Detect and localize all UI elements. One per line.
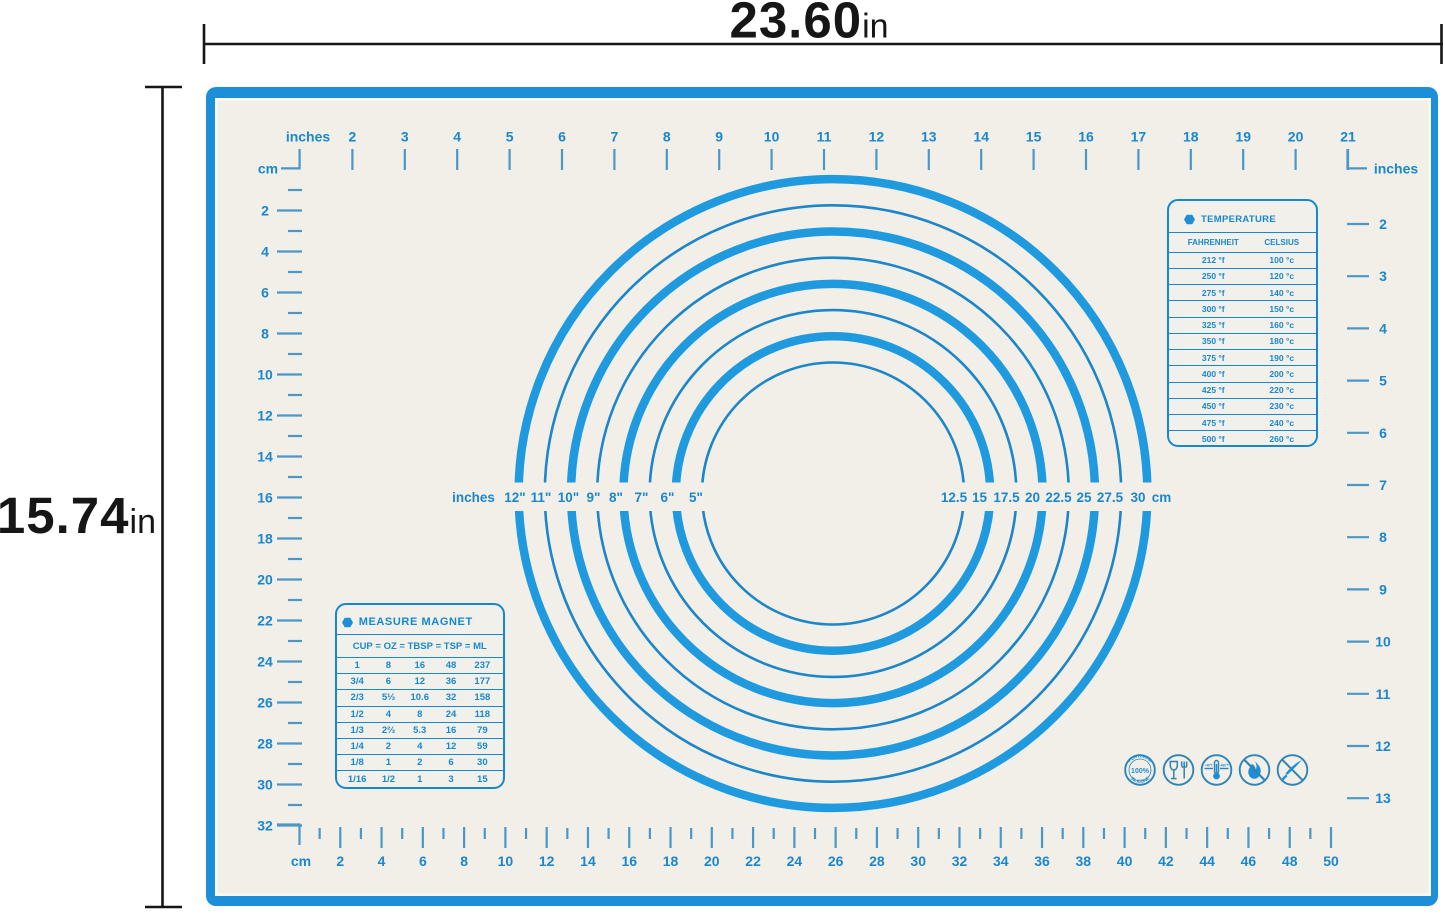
svg-text:cm: cm <box>258 161 278 177</box>
svg-text:30: 30 <box>1130 490 1145 505</box>
svg-text:13: 13 <box>921 129 937 145</box>
svg-text:26: 26 <box>257 695 273 711</box>
svg-text:30: 30 <box>910 853 926 869</box>
svg-text:17.5: 17.5 <box>993 490 1020 505</box>
svg-text:20: 20 <box>704 853 720 869</box>
svg-text:22: 22 <box>745 853 761 869</box>
svg-text:20: 20 <box>1288 129 1304 145</box>
svg-text:30: 30 <box>257 777 273 793</box>
svg-text:18: 18 <box>1183 129 1199 145</box>
svg-text:8: 8 <box>460 853 468 869</box>
svg-text:12": 12" <box>504 490 525 505</box>
svg-text:3: 3 <box>401 129 409 145</box>
svg-text:4: 4 <box>1379 320 1387 336</box>
svg-text:16: 16 <box>621 853 637 869</box>
svg-text:15: 15 <box>1026 129 1042 145</box>
svg-text:17: 17 <box>1131 129 1147 145</box>
svg-text:34: 34 <box>993 853 1009 869</box>
svg-text:15: 15 <box>972 490 988 505</box>
svg-text:7: 7 <box>611 129 619 145</box>
svg-text:10": 10" <box>558 490 579 505</box>
svg-text:15.74in: 15.74in <box>0 487 156 544</box>
svg-text:cm: cm <box>1152 490 1172 505</box>
svg-text:12: 12 <box>539 853 555 869</box>
svg-text:10: 10 <box>1375 634 1391 650</box>
svg-text:2: 2 <box>261 203 269 219</box>
svg-text:inches: inches <box>1374 161 1419 177</box>
svg-text:11": 11" <box>531 490 552 505</box>
svg-text:46: 46 <box>1241 853 1257 869</box>
svg-text:8": 8" <box>609 490 623 505</box>
svg-text:7": 7" <box>635 490 649 505</box>
svg-text:5: 5 <box>506 129 514 145</box>
svg-text:8: 8 <box>261 326 269 342</box>
svg-text:100%: 100% <box>1131 768 1150 775</box>
svg-text:cm: cm <box>291 853 311 869</box>
svg-text:6: 6 <box>419 853 427 869</box>
svg-text:28: 28 <box>257 736 273 752</box>
svg-text:14: 14 <box>580 853 596 869</box>
svg-text:36: 36 <box>1034 853 1050 869</box>
svg-text:12: 12 <box>257 408 273 424</box>
svg-text:inches: inches <box>452 490 495 505</box>
svg-text:18: 18 <box>257 531 273 547</box>
svg-text:14: 14 <box>973 129 989 145</box>
svg-text:16: 16 <box>1078 129 1094 145</box>
svg-text:6": 6" <box>661 490 675 505</box>
svg-text:24: 24 <box>257 654 273 670</box>
svg-text:27.5: 27.5 <box>1097 490 1124 505</box>
svg-text:18: 18 <box>663 853 679 869</box>
svg-text:11: 11 <box>817 129 832 145</box>
svg-text:13: 13 <box>1375 790 1391 806</box>
svg-text:50: 50 <box>1323 853 1339 869</box>
svg-text:7: 7 <box>1379 477 1387 493</box>
svg-text:4: 4 <box>453 129 461 145</box>
svg-text:5: 5 <box>1379 373 1387 389</box>
svg-text:24: 24 <box>787 853 803 869</box>
svg-text:26: 26 <box>828 853 844 869</box>
svg-text:10: 10 <box>498 853 514 869</box>
svg-text:28: 28 <box>869 853 885 869</box>
svg-text:8: 8 <box>1379 529 1387 545</box>
svg-text:10: 10 <box>764 129 780 145</box>
svg-text:23.60in: 23.60in <box>729 0 888 49</box>
svg-text:6: 6 <box>558 129 566 145</box>
svg-text:9": 9" <box>587 490 601 505</box>
svg-text:4: 4 <box>378 853 386 869</box>
svg-text:6: 6 <box>1379 425 1387 441</box>
svg-text:48: 48 <box>1282 853 1298 869</box>
svg-text:4: 4 <box>261 244 269 260</box>
svg-text:22: 22 <box>257 613 273 629</box>
svg-text:-40°f: -40°f <box>1205 764 1213 768</box>
svg-text:11: 11 <box>1376 686 1391 702</box>
svg-text:5": 5" <box>689 490 703 505</box>
svg-text:inches: inches <box>286 129 331 145</box>
svg-text:16: 16 <box>257 490 273 506</box>
svg-text:42: 42 <box>1158 853 1174 869</box>
svg-text:20: 20 <box>1025 490 1040 505</box>
svg-text:8: 8 <box>663 129 671 145</box>
svg-text:9: 9 <box>715 129 723 145</box>
svg-text:2: 2 <box>1379 216 1387 232</box>
svg-text:32: 32 <box>952 853 968 869</box>
svg-text:6: 6 <box>261 285 269 301</box>
svg-text:21: 21 <box>1340 129 1356 145</box>
svg-text:12: 12 <box>1375 738 1391 754</box>
svg-text:32: 32 <box>257 818 273 834</box>
svg-text:480°f: 480°f <box>1220 764 1229 768</box>
svg-text:19: 19 <box>1235 129 1251 145</box>
svg-text:38: 38 <box>1076 853 1092 869</box>
svg-text:2: 2 <box>349 129 357 145</box>
svg-text:2: 2 <box>336 853 344 869</box>
svg-text:14: 14 <box>257 449 273 465</box>
svg-text:10: 10 <box>257 367 273 383</box>
svg-text:40: 40 <box>1117 853 1133 869</box>
svg-text:44: 44 <box>1199 853 1215 869</box>
svg-text:12: 12 <box>869 129 885 145</box>
svg-text:20: 20 <box>257 572 273 588</box>
svg-text:9: 9 <box>1379 581 1387 597</box>
svg-text:3: 3 <box>1379 268 1387 284</box>
svg-text:25: 25 <box>1076 490 1092 505</box>
svg-text:22.5: 22.5 <box>1045 490 1072 505</box>
svg-text:12.5: 12.5 <box>941 490 968 505</box>
